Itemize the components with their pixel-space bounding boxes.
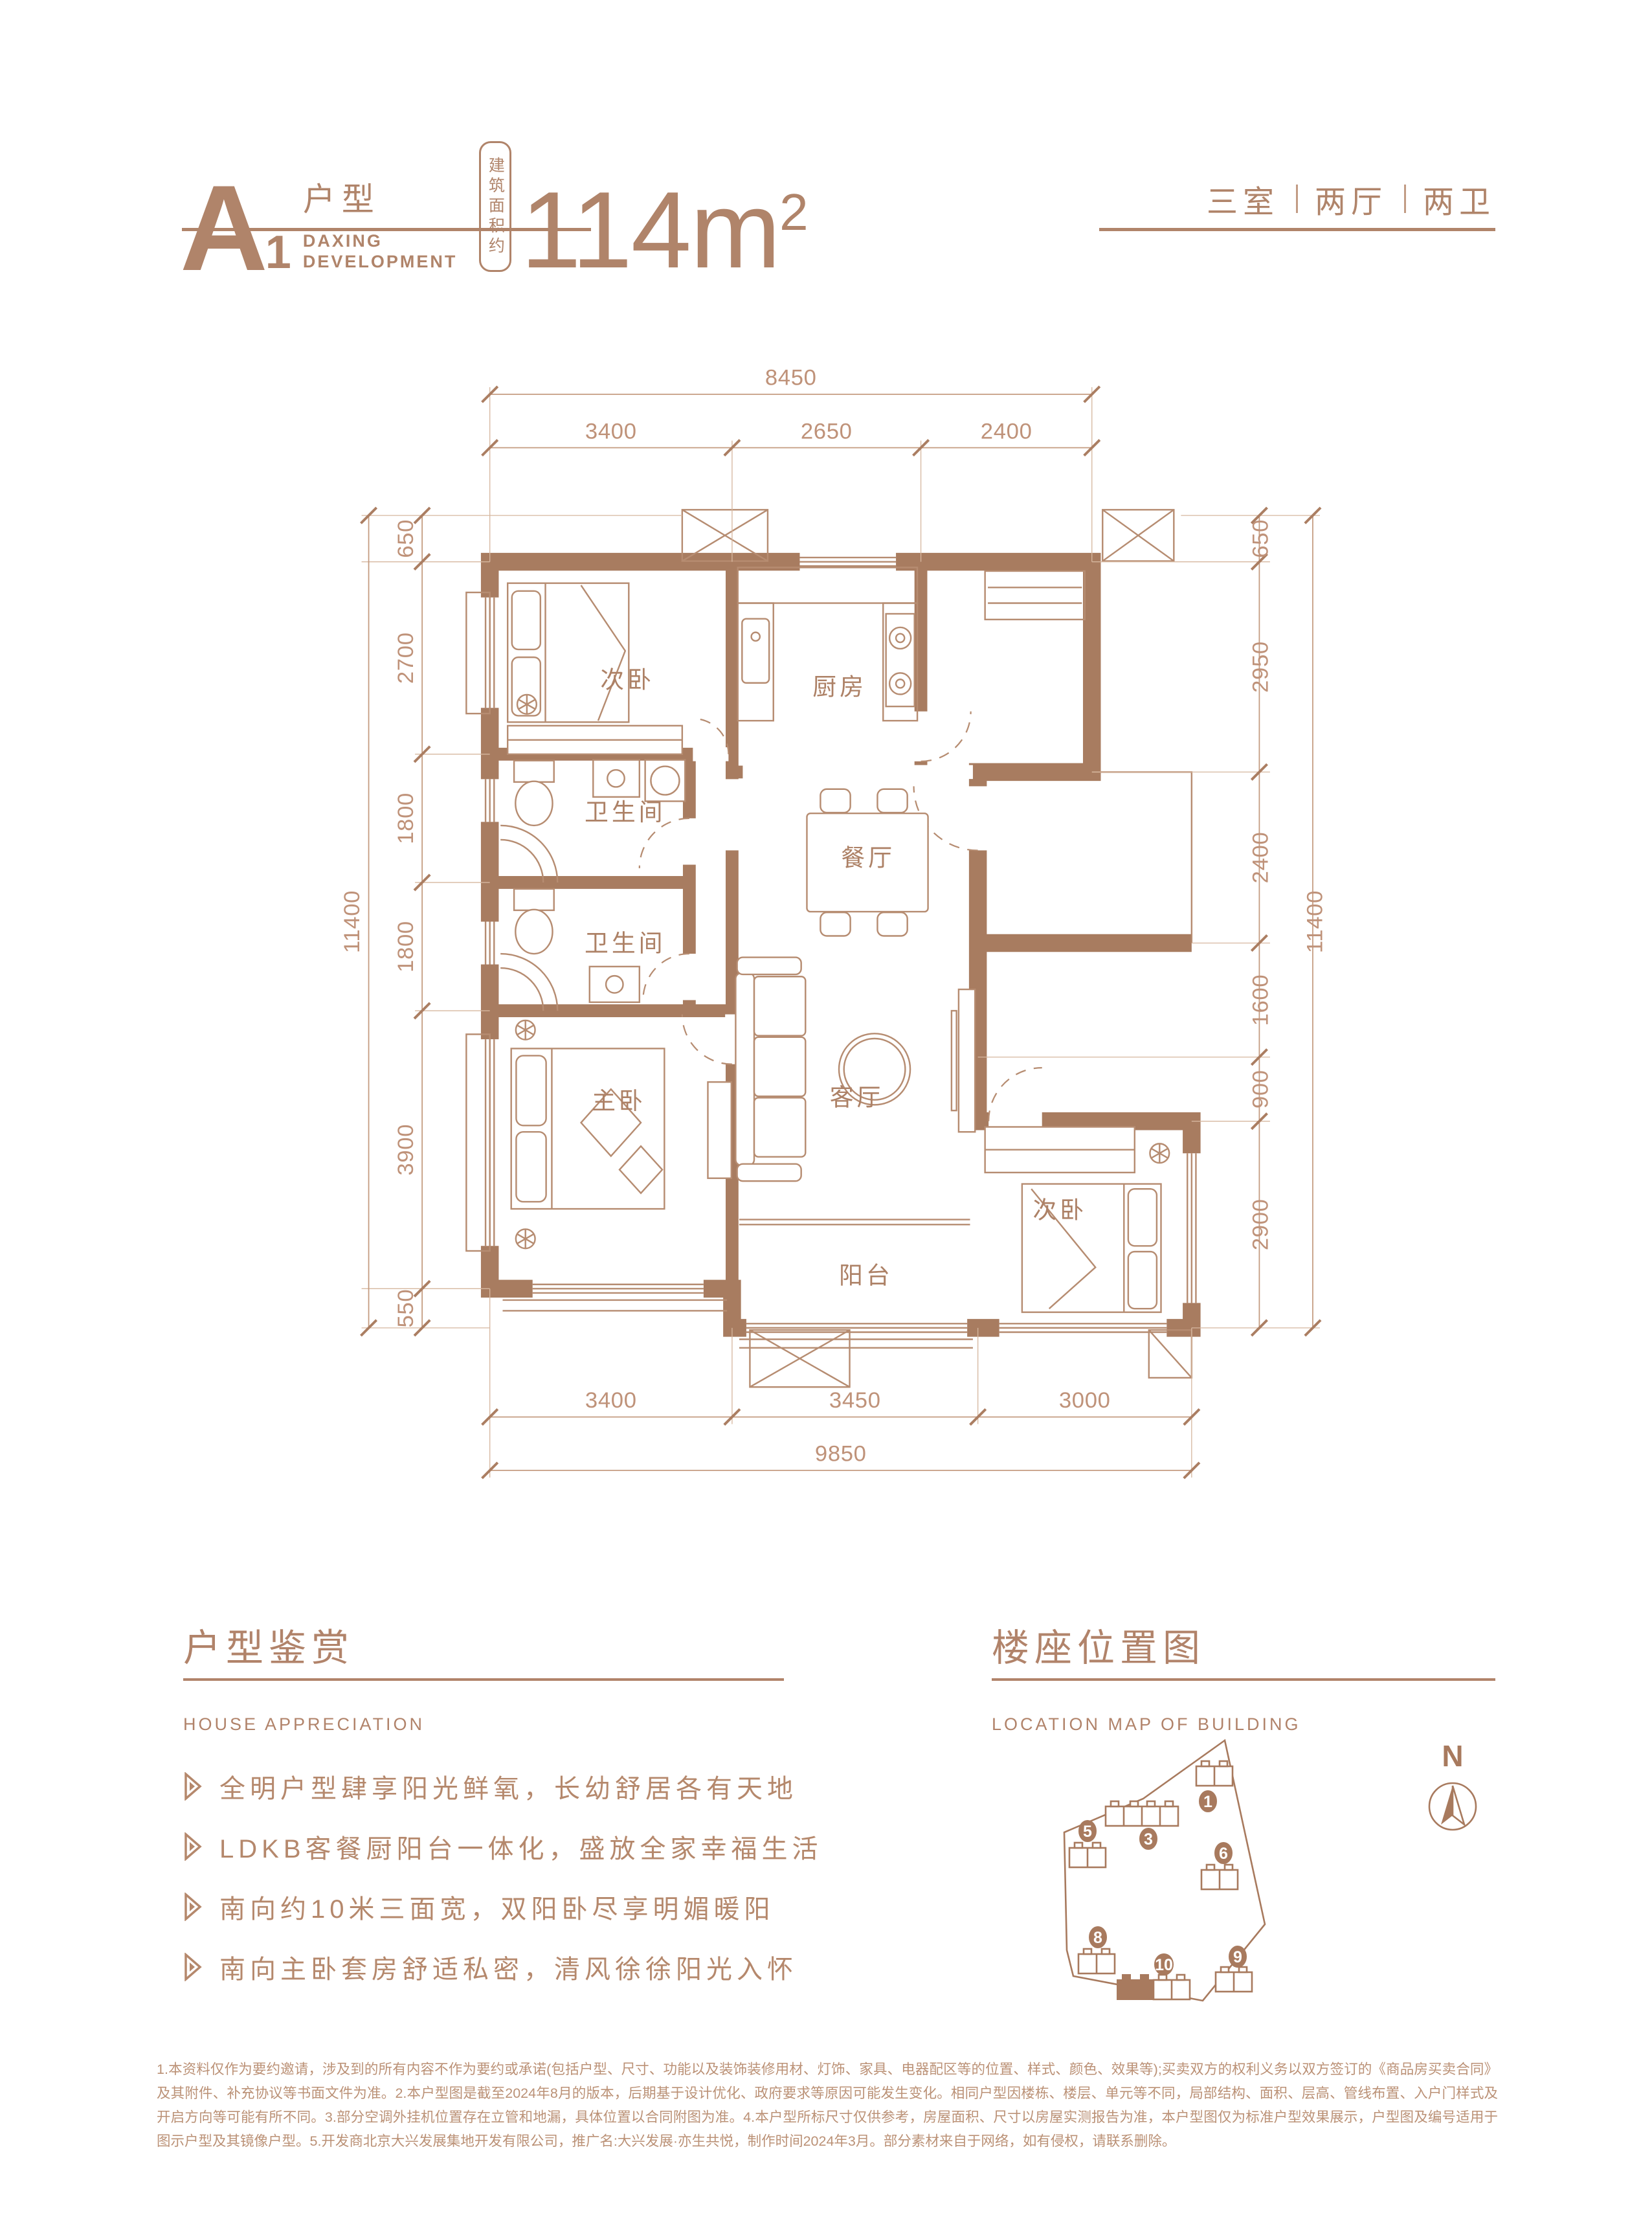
- room-label-bath2: 卫生间: [585, 930, 665, 957]
- layout-tags: 三室 两厅 两卫: [1207, 176, 1495, 221]
- badge-8: 8: [1093, 1929, 1102, 1947]
- building-6: [1201, 1865, 1238, 1889]
- chevron-icon: [183, 1832, 203, 1861]
- badge-1: 1: [1203, 1793, 1212, 1811]
- site-map: 1 3 5 6 8 9 10 N: [1010, 1724, 1528, 2028]
- building-3: [1106, 1801, 1178, 1826]
- area-value: 114m2: [520, 170, 808, 272]
- foyer-closet: [985, 571, 1085, 620]
- area-badge: 建筑面积约: [479, 141, 511, 272]
- tag-separator: [1296, 185, 1298, 213]
- header-underline-right: [1099, 228, 1495, 231]
- tag-baths: 两卫: [1423, 176, 1495, 221]
- room-label-bedroom-right: 次卧: [1032, 1197, 1087, 1223]
- badge-3: 3: [1144, 1830, 1153, 1849]
- bullet-text: 全明户型肆享阳光鲜氧，长幼舒居各有天地: [219, 1768, 798, 1805]
- compass-n-label: N: [1442, 1739, 1463, 1773]
- building-5: [1069, 1843, 1106, 1867]
- chevron-icon: [183, 1953, 203, 1981]
- chevron-icon: [183, 1893, 203, 1921]
- dim-left-seg2: 2700: [394, 632, 418, 684]
- location-underline: [992, 1678, 1495, 1681]
- room-label-master: 主卧: [592, 1088, 646, 1114]
- dim-bottom-overall: 9850: [815, 1442, 867, 1467]
- floor-plan: 次卧 厨房 卫生间 卫生间 餐厅 客厅 主卧 阳台 次卧 3400 2650 2…: [301, 355, 1363, 1496]
- appreciation-bullets: 全明户型肆享阳光鲜氧，长幼舒居各有天地 LDKB客餐厨阳台一体化，盛放全家幸福生…: [183, 1756, 960, 1997]
- appreciation-subtitle: HOUSE APPRECIATION: [183, 1714, 425, 1735]
- dim-top-seg1: 3400: [585, 419, 637, 444]
- building-8: [1078, 1949, 1115, 1973]
- badge-5: 5: [1083, 1823, 1092, 1841]
- header-underline-left: [182, 228, 591, 231]
- dim-right-overall: 11400: [1302, 890, 1327, 953]
- dim-left-seg6: 550: [394, 1289, 418, 1328]
- balcony-lines: [739, 1220, 970, 1225]
- dim-left-seg4: 1800: [394, 921, 418, 972]
- brand-line2: DEVELOPMENT: [303, 251, 458, 272]
- badge-6: 6: [1219, 1845, 1228, 1863]
- dim-right-seg1: 650: [1249, 519, 1273, 558]
- brand-line1: DAXING: [303, 230, 458, 251]
- unit-header: A 1 户型 DAXING DEVELOPMENT 建筑面积约 114m2: [180, 141, 809, 272]
- dim-left-overall: 11400: [340, 890, 364, 953]
- building-10-highlighted: [1117, 1975, 1190, 1999]
- area-exponent: 2: [779, 183, 809, 241]
- dim-right-seg4: 1600: [1249, 974, 1273, 1026]
- compass-icon: N: [1429, 1739, 1476, 1830]
- bullet-row: 南向约10米三面宽，双阳卧尽享明媚暖阳: [183, 1876, 960, 1937]
- dim-right-seg2: 2950: [1249, 641, 1273, 693]
- dim-bottom-seg1: 3400: [585, 1388, 637, 1413]
- dim-right-seg6: 2900: [1249, 1198, 1273, 1250]
- dim-left-seg3: 1800: [394, 793, 418, 844]
- master-furniture: [511, 1020, 731, 1248]
- room-label-balcony: 阳台: [839, 1263, 893, 1289]
- dim-right-seg5: 900: [1249, 1070, 1273, 1108]
- dim-top-seg2: 2650: [801, 419, 853, 444]
- appreciation-underline: [183, 1678, 784, 1681]
- dim-top-overall: 8450: [765, 366, 817, 390]
- location-title: 楼座位置图: [992, 1617, 1205, 1672]
- bullet-row: 南向主卧套房舒适私密，清风徐徐阳光入怀: [183, 1937, 960, 1997]
- dim-left-seg5: 3900: [394, 1124, 418, 1176]
- disclaimer-text: 1.本资料仅作为要约邀请，涉及到的所有内容不作为要约或承诺(包括户型、尺寸、功能…: [157, 2058, 1498, 2153]
- badge-9: 9: [1233, 1948, 1242, 1966]
- bullet-text: LDKB客餐厨阳台一体化，盛放全家幸福生活: [219, 1828, 823, 1865]
- room-label-living: 客厅: [830, 1084, 884, 1110]
- dim-bottom-seg2: 3450: [829, 1388, 881, 1413]
- bullet-row: LDKB客餐厨阳台一体化，盛放全家幸福生活: [183, 1816, 960, 1876]
- dim-right-seg3: 2400: [1249, 832, 1273, 884]
- living-furniture: [735, 958, 975, 1182]
- badge-10: 10: [1155, 1956, 1173, 1974]
- building-9: [1216, 1967, 1252, 1992]
- unit-header-texts: 户型 DAXING DEVELOPMENT: [303, 174, 458, 272]
- area-prefix: 建筑面积约: [484, 157, 507, 257]
- bedroom-top-furniture: [508, 583, 682, 754]
- unit-type-label: 户型: [303, 174, 458, 220]
- unit-number: 1: [265, 233, 291, 272]
- building-1: [1196, 1761, 1233, 1786]
- chevron-icon: [183, 1772, 203, 1801]
- dim-top-seg3: 2400: [981, 419, 1032, 444]
- dim-left-seg1: 650: [394, 519, 418, 558]
- bullet-row: 全明户型肆享阳光鲜氧，长幼舒居各有天地: [183, 1756, 960, 1816]
- room-label-dining: 餐厅: [841, 845, 895, 871]
- bullet-text: 南向约10米三面宽，双阳卧尽享明媚暖阳: [219, 1888, 775, 1926]
- room-label-kitchen: 厨房: [812, 673, 867, 700]
- tag-separator: [1404, 185, 1406, 213]
- appreciation-title: 户型鉴赏: [183, 1617, 354, 1672]
- room-label-bedroom-top: 次卧: [600, 666, 654, 693]
- tag-halls: 两厅: [1315, 176, 1387, 221]
- dim-bottom-seg3: 3000: [1059, 1388, 1111, 1413]
- bullet-text: 南向主卧套房舒适私密，清风徐徐阳光入怀: [219, 1948, 798, 1986]
- tag-rooms: 三室: [1207, 176, 1279, 221]
- room-label-bath1: 卫生间: [585, 799, 665, 826]
